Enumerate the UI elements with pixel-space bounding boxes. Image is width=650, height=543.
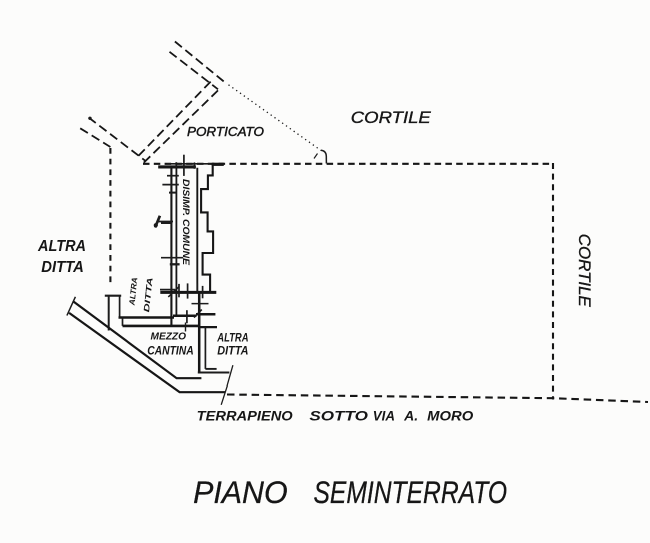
svg-text:CANTINA: CANTINA — [147, 346, 194, 358]
svg-text:DITTA: DITTA — [41, 259, 84, 276]
svg-text:MORO: MORO — [427, 409, 474, 424]
svg-text:DITTA: DITTA — [217, 346, 248, 358]
svg-text:ALTRA: ALTRA — [37, 238, 86, 255]
svg-text:A.: A. — [403, 409, 418, 424]
svg-text:DITTA: DITTA — [142, 277, 155, 313]
svg-text:TERRAPIENO: TERRAPIENO — [197, 409, 294, 424]
svg-text:CORTILE: CORTILE — [351, 109, 432, 127]
svg-text:SEMINTERRATO: SEMINTERRATO — [314, 474, 508, 510]
svg-text:VIA: VIA — [373, 409, 395, 424]
svg-text:SOTTO: SOTTO — [309, 409, 368, 424]
svg-text:ALTRA: ALTRA — [127, 277, 139, 307]
svg-text:DISIMP. COMUNE: DISIMP. COMUNE — [181, 179, 191, 266]
svg-text:ALTRA: ALTRA — [216, 333, 248, 345]
svg-text:CORTILE: CORTILE — [575, 234, 593, 308]
svg-text:MEZZO: MEZZO — [151, 330, 187, 342]
svg-text:PORTICATO: PORTICATO — [187, 124, 264, 139]
svg-text:PIANO: PIANO — [193, 474, 288, 510]
